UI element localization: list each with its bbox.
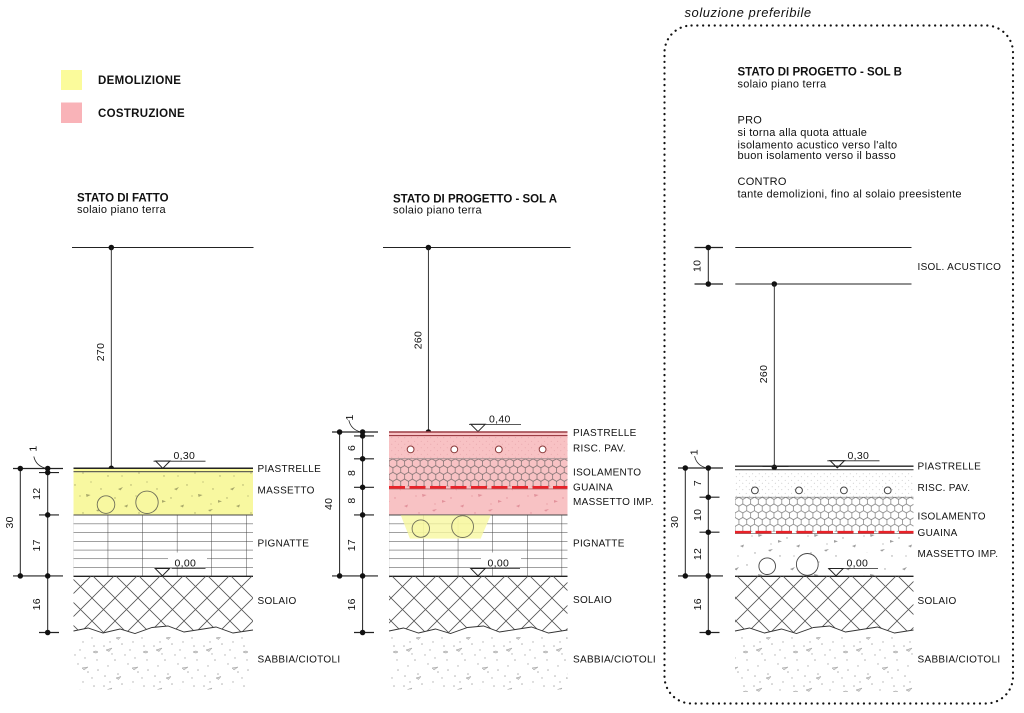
svg-text:0,40: 0,40 [489,413,511,425]
svg-text:1: 1 [28,445,40,451]
svg-text:260: 260 [758,365,770,383]
svg-text:12: 12 [31,488,43,500]
svg-text:CONTRO: CONTRO [738,176,787,188]
svg-text:solaio piano terra: solaio piano terra [77,204,167,216]
svg-text:MASSETTO IMP.: MASSETTO IMP. [573,497,654,508]
svg-text:40: 40 [323,498,335,510]
svg-text:PRO: PRO [738,115,763,127]
svg-text:ISOLAMENTO: ISOLAMENTO [918,511,986,522]
svg-text:7: 7 [692,480,704,486]
svg-text:0,00: 0,00 [847,558,869,570]
svg-text:0,30: 0,30 [174,450,196,462]
svg-text:MASSETTO: MASSETTO [258,486,315,497]
svg-text:6: 6 [346,445,358,451]
svg-text:8: 8 [346,498,358,504]
svg-text:8: 8 [346,470,358,476]
svg-text:PIGNATTE: PIGNATTE [573,538,625,549]
svg-text:PIASTRELLE: PIASTRELLE [573,428,637,439]
svg-text:260: 260 [412,331,424,349]
svg-text:solaio piano terra: solaio piano terra [738,79,828,91]
svg-text:SABBIA/CIOTOLI: SABBIA/CIOTOLI [258,655,341,666]
svg-text:SABBIA/CIOTOLI: SABBIA/CIOTOLI [573,655,656,666]
svg-text:GUAINA: GUAINA [918,528,958,539]
svg-text:soluzione preferibile: soluzione preferibile [685,5,812,20]
svg-text:RISC. PAV.: RISC. PAV. [918,483,971,494]
svg-text:STATO DI PROGETTO - SOL B: STATO DI PROGETTO - SOL B [738,66,902,78]
svg-text:tante demolizioni, fino al sol: tante demolizioni, fino al solaio preesi… [738,188,962,200]
svg-text:16: 16 [346,598,358,610]
svg-text:SABBIA/CIOTOLI: SABBIA/CIOTOLI [918,655,1001,666]
svg-text:16: 16 [31,598,43,610]
svg-text:0,30: 0,30 [848,450,870,462]
svg-text:PIASTRELLE: PIASTRELLE [258,464,322,475]
svg-text:PIASTRELLE: PIASTRELLE [918,462,982,473]
svg-text:SOLAIO: SOLAIO [258,596,297,607]
svg-text:STATO DI FATTO: STATO DI FATTO [77,193,169,205]
svg-text:0,00: 0,00 [175,558,197,570]
svg-text:30: 30 [4,516,16,528]
svg-text:ISOLAMENTO: ISOLAMENTO [573,468,641,479]
svg-text:GUAINA: GUAINA [573,482,613,493]
svg-text:solaio piano terra: solaio piano terra [393,205,483,217]
svg-text:10: 10 [692,509,704,521]
svg-text:10: 10 [692,260,704,272]
svg-text:12: 12 [692,548,704,560]
svg-text:17: 17 [31,539,43,551]
svg-text:RISC. PAV.: RISC. PAV. [573,444,626,455]
svg-text:SOLAIO: SOLAIO [918,596,957,607]
svg-text:0,00: 0,00 [488,558,510,570]
svg-text:si torna alla quota attuale: si torna alla quota attuale [738,127,868,139]
svg-text:DEMOLIZIONE: DEMOLIZIONE [98,75,181,87]
svg-text:1: 1 [344,414,356,420]
svg-text:16: 16 [692,598,704,610]
svg-text:270: 270 [95,343,107,361]
svg-text:MASSETTO IMP.: MASSETTO IMP. [918,549,999,560]
svg-text:1: 1 [688,449,700,455]
svg-text:ISOL. ACUSTICO: ISOL. ACUSTICO [918,262,1002,273]
svg-text:17: 17 [346,539,358,551]
svg-text:COSTRUZIONE: COSTRUZIONE [98,108,185,120]
svg-text:STATO DI PROGETTO - SOL A: STATO DI PROGETTO - SOL A [393,193,557,205]
svg-text:buon isolamento verso il basso: buon isolamento verso il basso [738,150,897,162]
svg-text:SOLAIO: SOLAIO [573,595,612,606]
svg-text:PIGNATTE: PIGNATTE [258,539,310,550]
svg-text:30: 30 [669,516,681,528]
